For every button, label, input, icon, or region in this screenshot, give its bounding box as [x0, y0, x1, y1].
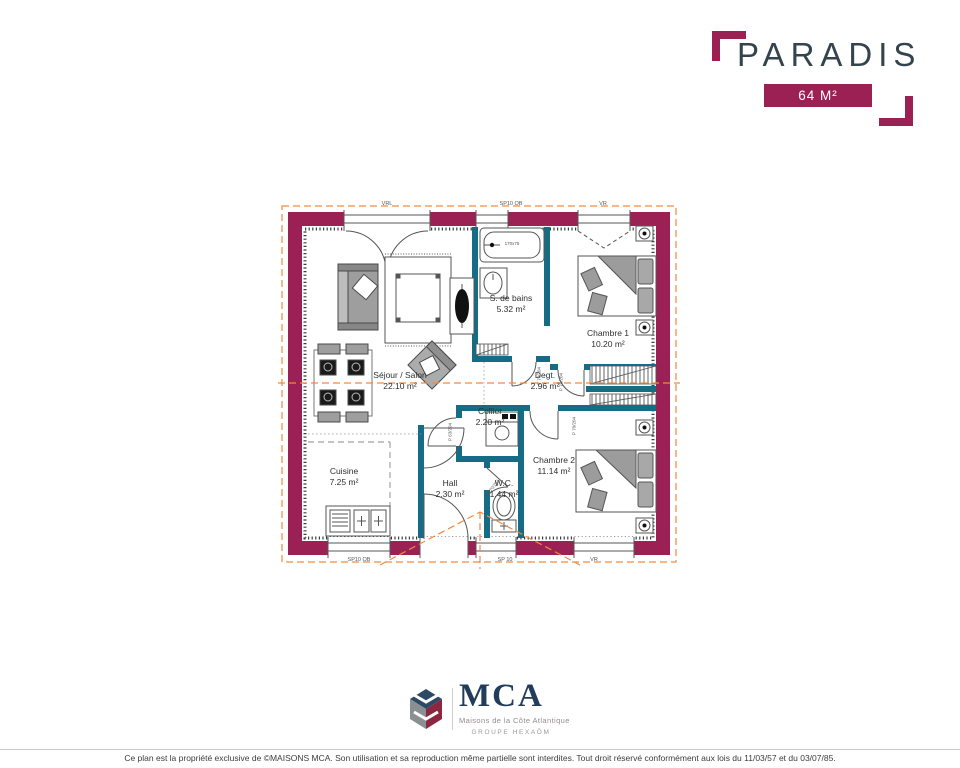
window-label-vrl: VRL: [382, 201, 393, 207]
room-area: 2.20 m²: [476, 417, 505, 428]
door-label-p63: P 63/204: [448, 423, 453, 441]
room-label-cellier: Cellier 2.20 m²: [476, 406, 505, 428]
kitchen-sink: [326, 506, 390, 536]
window-label-sp10ob-top: SP10 OB: [500, 201, 523, 207]
area-badge: 64 M²: [764, 84, 872, 107]
room-area: 2.96 m²: [531, 381, 560, 392]
room-name: Cuisine: [330, 466, 359, 477]
logo-divider: [452, 688, 453, 730]
sofa: [338, 264, 378, 330]
room-label-degt: Degt. 2.96 m²: [531, 370, 560, 392]
ceiling-light: [636, 320, 653, 335]
room-label-hall: Hall 2.30 m²: [436, 478, 465, 500]
floor-plan: S. de bains 5.32 m² Chambre 1 10.20 m² S…: [278, 200, 680, 570]
radiator: [476, 344, 508, 355]
room-name: Chambre 2: [533, 455, 575, 466]
room-name: Hall: [436, 478, 465, 489]
closets: [590, 366, 656, 405]
coffee-table: [396, 274, 440, 322]
page-title: PARADIS: [737, 36, 921, 74]
footer-divider: [0, 749, 960, 750]
ceiling-light: [636, 420, 653, 435]
room-area: 11.14 m²: [533, 466, 575, 477]
room-area: 5.32 m²: [490, 304, 533, 315]
logo-tagline: Maisons de la Côte Atlantique: [459, 716, 570, 725]
room-label-cuisine: Cuisine 7.25 m²: [330, 466, 359, 488]
door-label-p70: P 70/204: [537, 367, 542, 385]
room-area: 10.20 m²: [587, 339, 629, 350]
room-label-chambre-2: Chambre 2 11.14 m²: [533, 455, 575, 477]
room-name: Degt.: [531, 370, 560, 381]
room-name: Chambre 1: [587, 328, 629, 339]
room-label-s-de-bains: S. de bains 5.32 m²: [490, 293, 533, 315]
mca-cube-icon: [408, 683, 444, 735]
room-area: 2.30 m²: [436, 489, 465, 500]
bathtub-size-label: 170x75: [505, 241, 520, 246]
room-area: 7.25 m²: [330, 477, 359, 488]
window-label-vr-top: VR: [599, 201, 607, 207]
window-label-sp10ob-bottom: SP10 OB: [348, 557, 371, 563]
corner-bracket-bottom-right: [879, 96, 913, 126]
door-label-p70: P 70/204: [572, 417, 577, 435]
bed-chambre2: [576, 450, 656, 512]
logo-acronym: MCA: [459, 678, 544, 715]
room-label-chambre-1: Chambre 1 10.20 m²: [587, 328, 629, 350]
bed-chambre1: [578, 256, 656, 316]
ceiling-light: [636, 226, 653, 241]
room-name: Cellier: [476, 406, 505, 417]
plant: [450, 278, 474, 334]
ceiling-light: [636, 518, 653, 533]
room-area: 1.44 m²: [490, 489, 519, 500]
window-label-sp10-bottom: SP 10: [498, 557, 513, 563]
floor-plan-drawing: [278, 200, 680, 570]
room-label-sejour-salon: Séjour / Salon 22.10 m²: [373, 370, 426, 392]
door-label-p70: P 70/204: [559, 373, 564, 391]
room-area: 22.10 m²: [373, 381, 426, 392]
logo-group-name: GROUPE HEXAŌM: [459, 729, 563, 736]
room-name: Séjour / Salon: [373, 370, 426, 381]
window-label-vr-bottom: VR: [590, 557, 598, 563]
footer-disclaimer: Ce plan est la propriété exclusive de ©M…: [0, 753, 960, 763]
room-name: S. de bains: [490, 293, 533, 304]
